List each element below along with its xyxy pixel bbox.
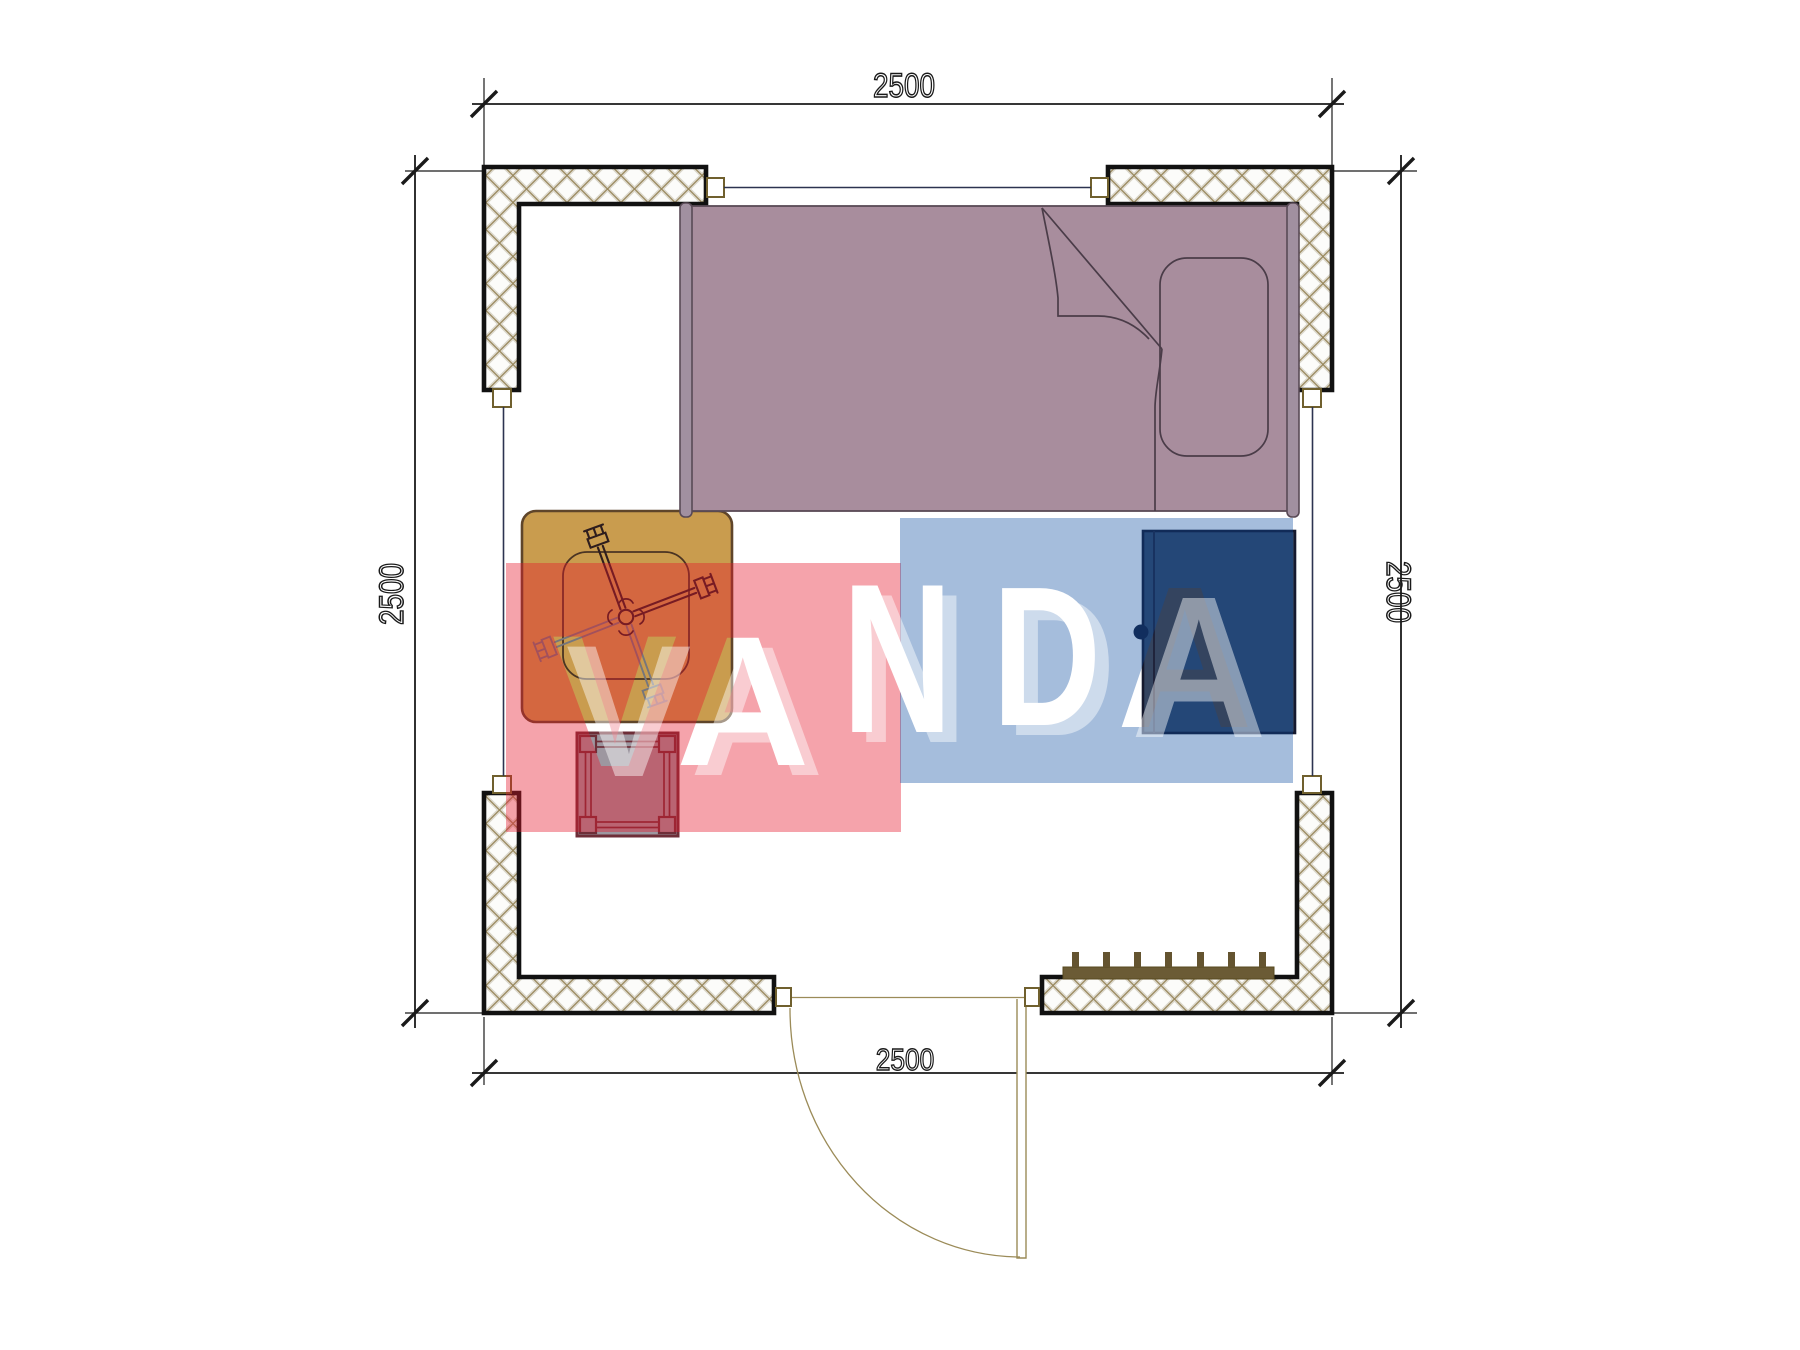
svg-text:2500: 2500	[1379, 561, 1417, 623]
svg-text:2500: 2500	[873, 66, 935, 104]
svg-text:2500: 2500	[372, 563, 410, 625]
svg-text:2500: 2500	[876, 1043, 935, 1077]
